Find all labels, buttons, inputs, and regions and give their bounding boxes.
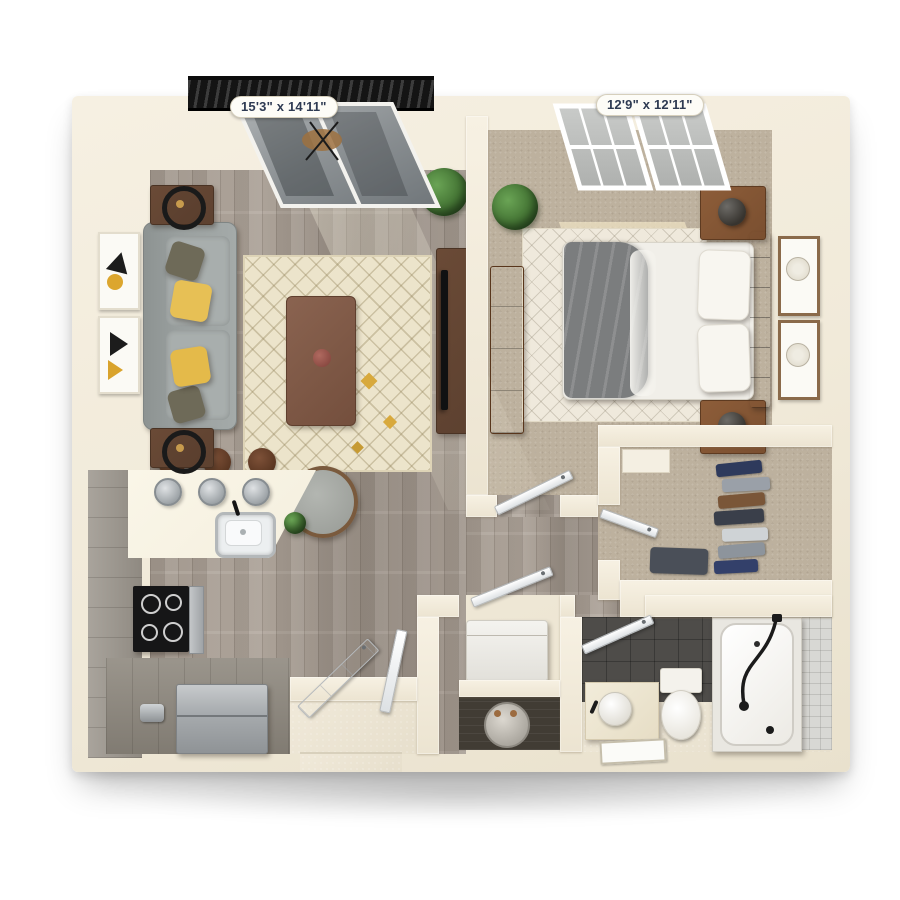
dimension-label-bedroom: 12'9" x 12'11" <box>596 94 704 116</box>
dimension-label-living: 15'3" x 14'11" <box>230 96 338 118</box>
sliding-glass-door <box>236 104 438 206</box>
shower-fixture <box>739 614 782 734</box>
floorplan-canvas: 15'3" x 14'11" 12'9" x 12'11" <box>0 0 900 900</box>
bedroom-window <box>556 106 728 188</box>
glazing-and-fixtures-layer <box>0 0 900 900</box>
